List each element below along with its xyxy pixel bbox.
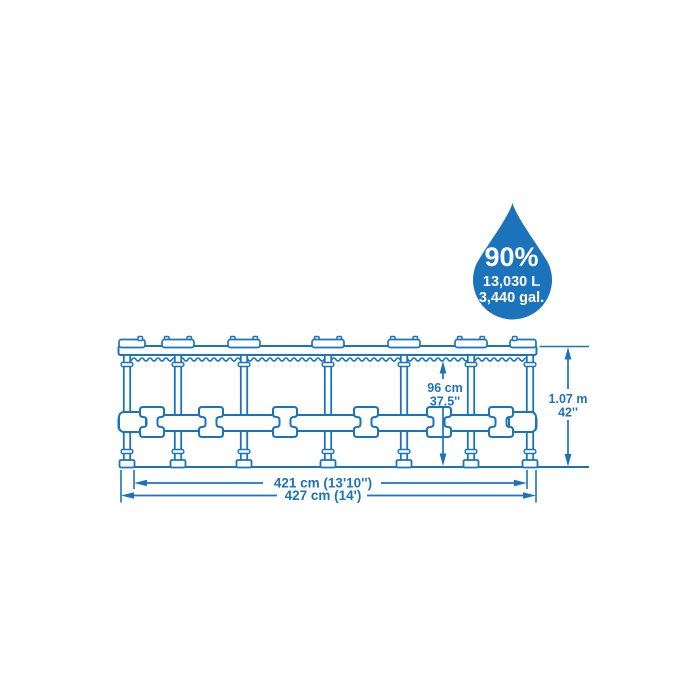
rail-end-cap-right (510, 337, 536, 348)
pool-frame-drawing (119, 337, 590, 468)
arrow-down-icon (565, 454, 572, 467)
frame-post (464, 355, 479, 468)
frame-post (237, 355, 252, 468)
arrow-left-icon (134, 480, 147, 487)
outer-diameter-label-group: 427 cm (14') (285, 488, 362, 503)
height-dimension-label: 1.07 m 42'' (549, 392, 588, 420)
rail-joint-cap (455, 337, 487, 348)
pool-dimension-diagram: 90% 13,030 L 3,440 gal. (0, 0, 700, 700)
drop-percent-label: 90% (484, 242, 538, 272)
arrow-down-icon (440, 454, 447, 467)
depth-metric-label: 96 cm (427, 381, 462, 395)
height-imperial-label: 42'' (558, 406, 578, 420)
arrow-left-icon (121, 492, 134, 499)
rail-joint-cap (228, 337, 260, 348)
rail-joint-cap (162, 337, 194, 348)
support-band (119, 415, 537, 431)
depth-imperial-label: 37.5'' (430, 395, 460, 409)
water-drop-icon: 90% 13,030 L 3,440 gal. (473, 203, 552, 319)
rail-end-cap-left (119, 337, 145, 348)
outer-diameter-label: 427 cm (14') (285, 488, 362, 503)
arrow-up-icon (565, 347, 572, 360)
arrow-right-icon (523, 492, 536, 499)
frame-post (171, 355, 186, 468)
arrow-right-icon (514, 480, 527, 487)
height-metric-label: 1.07 m (549, 392, 588, 406)
depth-dimension-label: 96 cm 37.5'' (427, 381, 462, 409)
product-spec-image: 90% 13,030 L 3,440 gal. (0, 0, 700, 700)
drop-liters-label: 13,030 L (483, 274, 540, 290)
rail-joint-cap (312, 337, 344, 348)
frame-post (321, 355, 336, 468)
arrow-up-icon (440, 361, 447, 374)
drop-gallons-label: 3,440 gal. (479, 290, 544, 306)
rail-joint-cap (388, 337, 420, 348)
frame-post (397, 355, 412, 468)
